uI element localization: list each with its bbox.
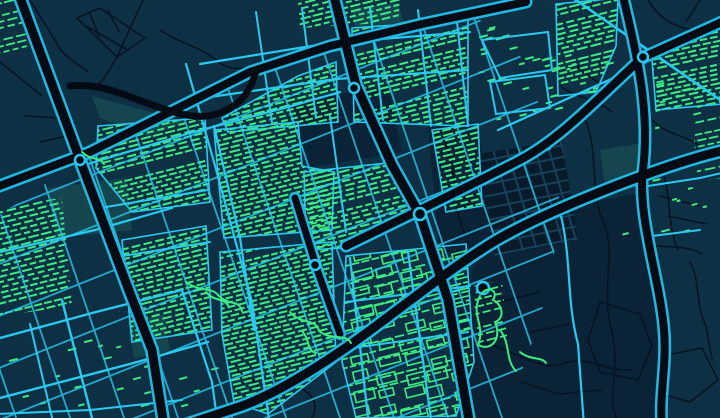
green-tick [519, 63, 525, 64]
roundabout [638, 52, 648, 62]
map-viewport[interactable] [0, 0, 720, 418]
green-tick [703, 206, 707, 207]
roundabout [75, 155, 85, 165]
roundabout [310, 260, 320, 270]
green-tick [580, 83, 586, 84]
green-tick [692, 204, 698, 205]
green-tick [660, 101, 666, 102]
green-tick [572, 64, 576, 65]
roundabout [349, 83, 359, 93]
green-tick [545, 65, 550, 66]
green-tick [677, 200, 681, 201]
green-tick [194, 390, 200, 391]
roundabout [414, 208, 426, 220]
green-tick [655, 127, 659, 128]
green-tick [697, 106, 702, 107]
green-tick [672, 199, 677, 200]
green-tick [116, 346, 121, 347]
street-map [0, 0, 720, 418]
green-tick [656, 110, 660, 111]
green-tick [548, 87, 553, 88]
green-tick [688, 188, 693, 189]
green-tick [566, 69, 570, 70]
green-tick [676, 96, 680, 97]
